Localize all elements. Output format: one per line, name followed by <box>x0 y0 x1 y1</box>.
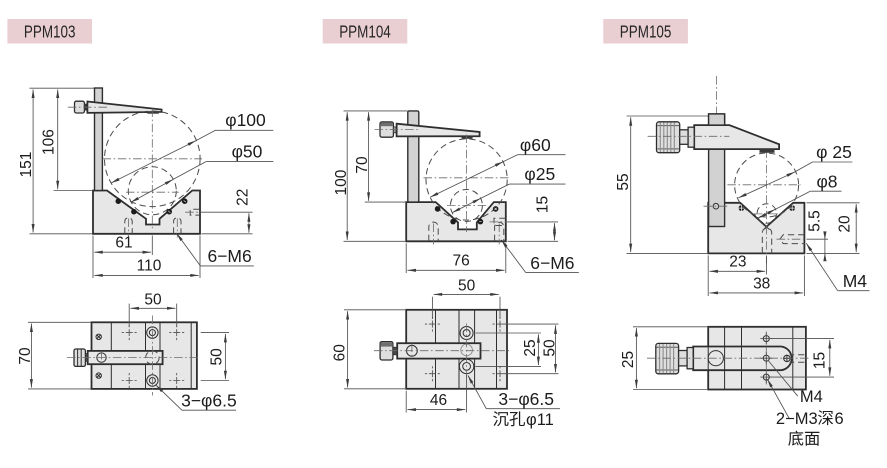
svg-text:φ8: φ8 <box>816 172 837 192</box>
svg-text:106: 106 <box>41 129 58 155</box>
svg-text:61: 61 <box>115 235 132 252</box>
svg-text:38: 38 <box>753 275 770 292</box>
svg-text:50: 50 <box>541 339 558 357</box>
svg-text:M4: M4 <box>843 271 868 291</box>
svg-text:50: 50 <box>458 278 476 295</box>
svg-text:100: 100 <box>333 169 350 195</box>
svg-text:6−M6: 6−M6 <box>207 246 251 266</box>
svg-text:60: 60 <box>331 344 348 362</box>
svg-text:46: 46 <box>430 392 447 409</box>
svg-text:20: 20 <box>836 215 853 233</box>
svg-text:50: 50 <box>144 292 162 309</box>
svg-text:2−M3: 2−M3 <box>776 410 818 428</box>
svg-text:70: 70 <box>354 156 371 174</box>
svg-text:23: 23 <box>729 254 746 271</box>
svg-text:15: 15 <box>535 196 552 213</box>
svg-text:22: 22 <box>235 189 252 206</box>
svg-text:15: 15 <box>811 352 828 369</box>
svg-text:25: 25 <box>522 339 539 356</box>
svg-text:6: 6 <box>835 410 844 428</box>
svg-text:M4: M4 <box>800 388 823 406</box>
svg-text:φ100: φ100 <box>225 110 266 130</box>
svg-text:6−M6: 6−M6 <box>530 253 574 273</box>
svg-text:70: 70 <box>17 347 34 365</box>
svg-text:5.5: 5.5 <box>806 210 823 232</box>
svg-text:50: 50 <box>209 348 226 366</box>
svg-text:φ25: φ25 <box>524 164 555 184</box>
svg-text:φ60: φ60 <box>520 135 551 155</box>
svg-text:3−φ6.5: 3−φ6.5 <box>181 391 237 411</box>
svg-text:25: 25 <box>620 351 637 368</box>
svg-text:φ50: φ50 <box>232 142 263 162</box>
svg-text:76: 76 <box>452 253 469 270</box>
svg-text:3−φ6.5: 3−φ6.5 <box>498 389 554 409</box>
svg-text:110: 110 <box>137 258 162 275</box>
svg-text:PPM103: PPM103 <box>24 21 76 41</box>
svg-text:55: 55 <box>615 173 632 190</box>
svg-text:PPM104: PPM104 <box>339 21 391 41</box>
svg-text:φ 25: φ 25 <box>816 142 852 162</box>
svg-text:φ11: φ11 <box>526 411 554 429</box>
svg-text:PPM105: PPM105 <box>620 21 672 41</box>
svg-text:151: 151 <box>18 152 35 178</box>
